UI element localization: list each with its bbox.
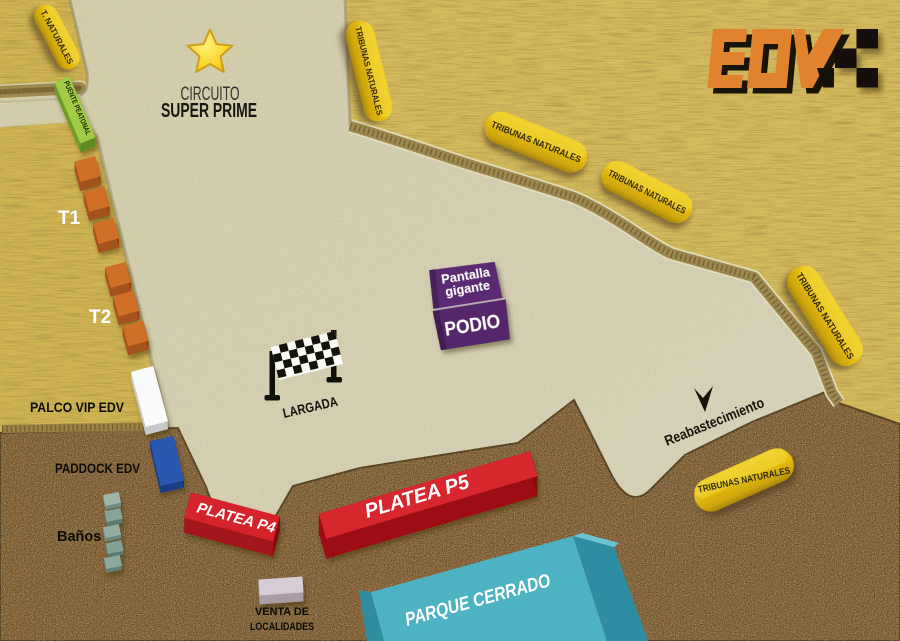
svg-text:PADDOCK EDV: PADDOCK EDV	[55, 460, 141, 476]
svg-text:T2: T2	[89, 307, 111, 328]
svg-text:T1: T1	[58, 208, 81, 229]
svg-text:VENTA DE: VENTA DE	[255, 606, 309, 618]
svg-text:Baños: Baños	[57, 529, 101, 545]
svg-text:SUPER PRIME: SUPER PRIME	[161, 100, 257, 122]
svg-text:LOCALIDADES: LOCALIDADES	[250, 621, 314, 633]
svg-text:PALCO VIP EDV: PALCO VIP EDV	[30, 399, 125, 415]
